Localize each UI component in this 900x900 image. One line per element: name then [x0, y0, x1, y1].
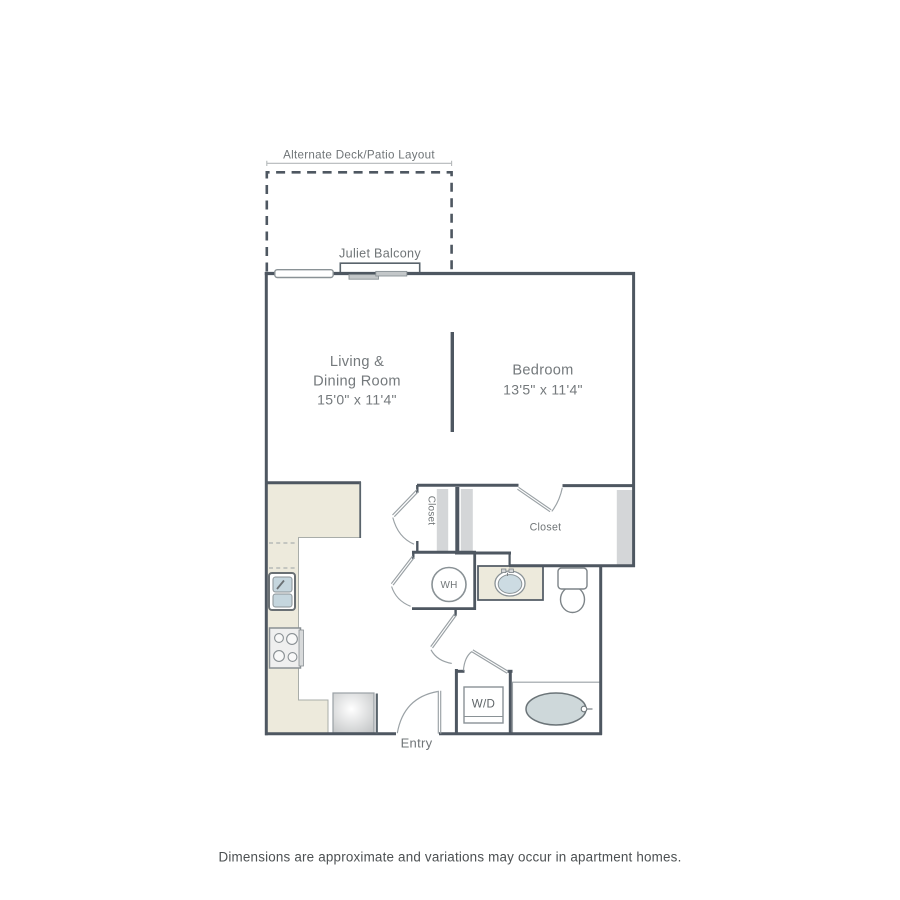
bedroom-closet-fill-left	[461, 489, 473, 554]
door-bathroom	[431, 614, 457, 664]
disclaimer-text: Dimensions are approximate and variation…	[219, 850, 682, 865]
bedroom-dimensions: 13'5" x 11'4"	[503, 382, 583, 398]
washer-dryer-label: W/D	[472, 698, 495, 711]
sliding-door-panel	[376, 271, 407, 276]
hall-closet-label: Closet	[426, 496, 437, 526]
toilet	[558, 568, 587, 613]
kitchen-sink	[269, 573, 295, 610]
deck-bracket-line	[267, 161, 452, 166]
bedroom-closet-fill-right	[617, 490, 632, 565]
bathroom-sink-basin	[498, 575, 522, 594]
bedroom-closet-label: Closet	[530, 522, 562, 534]
burner	[275, 634, 284, 643]
door-bedroom-closet	[517, 487, 562, 511]
floor-plan-canvas: Alternate Deck/Patio Layout Juliet Balco…	[0, 0, 900, 900]
door-washer-dryer	[463, 650, 508, 673]
entry-label: Entry	[401, 736, 433, 751]
living-room-label-line2: Dining Room	[313, 374, 401, 390]
tub-drain	[581, 706, 587, 712]
faucet-handle	[509, 569, 513, 573]
burner	[274, 651, 285, 662]
burner	[287, 634, 298, 645]
juliet-balcony-label: Juliet Balcony	[339, 247, 421, 261]
kitchen	[267, 483, 374, 733]
stove	[270, 628, 304, 668]
sliding-door-panel	[349, 275, 379, 280]
bathtub	[512, 682, 600, 733]
floor-plan-svg: Alternate Deck/Patio Layout Juliet Balco…	[0, 0, 900, 900]
vanity	[478, 566, 543, 600]
water-heater-label: WH	[440, 580, 457, 591]
door-entry	[397, 691, 440, 734]
door-hall-closet	[393, 490, 419, 545]
alternate-layout-label: Alternate Deck/Patio Layout	[283, 149, 435, 162]
hall-closet-fill	[437, 489, 448, 551]
bedroom-label: Bedroom	[512, 363, 573, 379]
burner	[288, 653, 297, 662]
faucet-handle	[502, 569, 506, 573]
window-living	[275, 270, 333, 278]
juliet-balcony-rail	[340, 263, 419, 272]
living-room-label-line1: Living &	[330, 354, 384, 370]
door-water-heater	[391, 556, 414, 606]
refrigerator	[333, 693, 374, 733]
windows	[275, 263, 420, 279]
living-room-dimensions: 15'0" x 11'4"	[317, 392, 397, 408]
